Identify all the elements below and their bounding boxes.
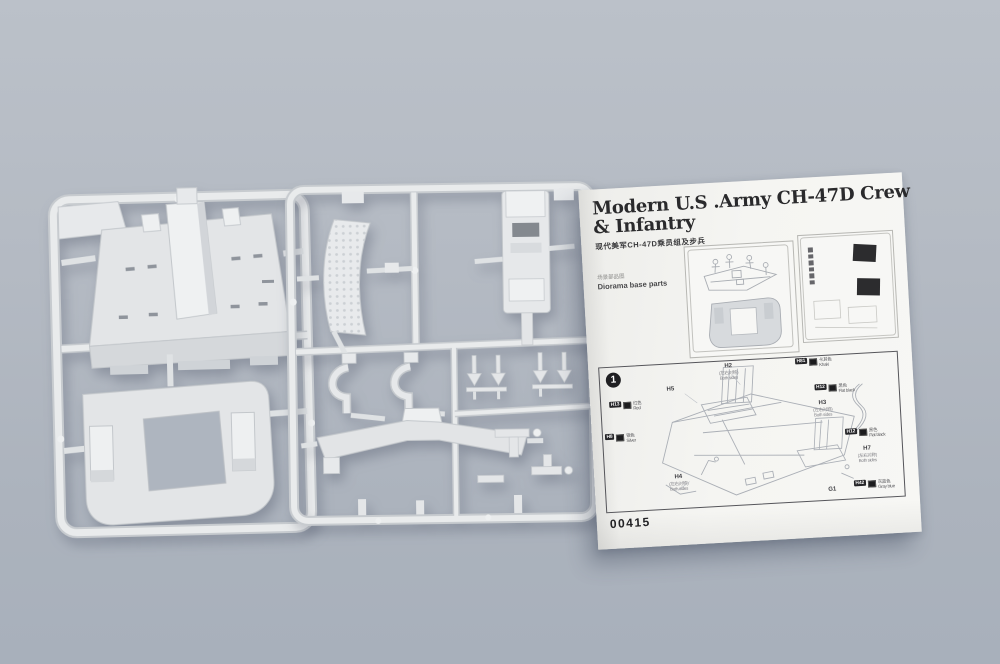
color-chip-icon: [809, 358, 817, 365]
paint-callout-flat-black-1: H12 黑色 Flat black: [814, 382, 855, 395]
sprue-map-drawing: [685, 242, 797, 356]
part-label-h7: H7 (左右对称) Both sides: [838, 444, 897, 464]
sprue-map-diagram-right: [797, 230, 899, 343]
part-label-h5: H5: [658, 386, 682, 394]
color-chip-icon: [828, 384, 836, 391]
part-label-h4: H4 (左右对称) Both sides: [649, 473, 708, 493]
sprue-left-base-parts: [46, 183, 325, 545]
paint-callout-red: H13 红色 Red: [609, 400, 642, 413]
paint-callout-khaki: H81 卡其色 Khaki: [795, 356, 832, 369]
sheet-title: Modern U.S .Army CH-47D Crew & Infantry: [592, 183, 894, 239]
paint-callout-silver: H8 银色 Silver: [605, 433, 636, 445]
paint-callout-flat-black-2: H12 黑色 Flat black: [845, 427, 886, 440]
color-chip-icon: [859, 428, 867, 435]
color-chip-icon: [623, 401, 631, 408]
color-chip-icon: [616, 434, 624, 441]
kit-number: 00415: [609, 515, 651, 531]
instruction-sheet: Modern U.S .Army CH-47D Crew & Infantry …: [578, 172, 922, 550]
part-label-h2: H2 (左右对称) Both sides: [699, 362, 758, 382]
base-plate-part: [62, 351, 310, 526]
color-chip-icon: [868, 480, 876, 487]
dark-parts-drawing: [798, 231, 898, 342]
quilted-seat-pad-part: [296, 218, 414, 356]
wide-panel-part: [301, 407, 544, 474]
arrow-shaped-parts: [466, 352, 573, 399]
seat-frame-part: [474, 190, 576, 345]
diorama-parts-label: 场景部品图 Diorama base parts: [597, 272, 667, 293]
model-kit-product-photo: Modern U.S .Army CH-47D Crew & Infantry …: [0, 0, 1000, 664]
sprue-right-detail-parts: [284, 178, 604, 530]
sprue-map-diagram-left: [684, 240, 800, 358]
assembly-step-panel: 1: [598, 351, 906, 514]
part-label-h3: H3 (左右对称) Both sides: [793, 398, 852, 418]
paint-callout-gray-blue: H42 灰蓝色 Gray blue: [854, 478, 895, 491]
part-label-g1: G1: [820, 486, 844, 494]
